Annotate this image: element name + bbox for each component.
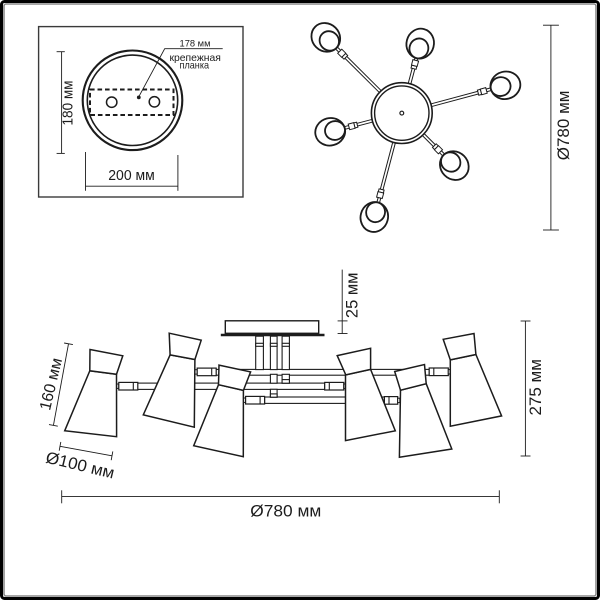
svg-text:200 мм: 200 мм (108, 168, 155, 184)
svg-text:25 мм: 25 мм (343, 272, 361, 318)
svg-text:Ø780 мм: Ø780 мм (250, 502, 321, 521)
svg-text:планка: планка (180, 60, 210, 72)
svg-text:Ø780 мм: Ø780 мм (554, 91, 573, 161)
svg-text:275 мм: 275 мм (526, 359, 545, 415)
svg-text:180 мм: 180 мм (60, 81, 76, 126)
svg-text:178 мм: 178 мм (180, 39, 211, 50)
